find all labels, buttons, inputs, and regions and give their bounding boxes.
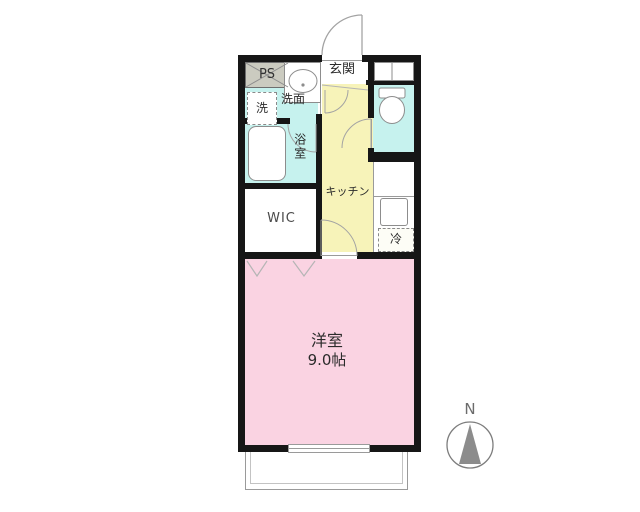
genkan-step-line bbox=[322, 85, 368, 90]
bathroom-label: 浴室 bbox=[292, 133, 306, 161]
pipe-space-label: PS bbox=[245, 62, 289, 88]
toilet-door-arc bbox=[342, 119, 371, 148]
main-room-size-label: 9.0帖 bbox=[267, 352, 387, 370]
kitchen-label: キッチン bbox=[320, 185, 375, 199]
main-room-door-arc bbox=[321, 220, 357, 256]
washstand-label: 洗面 bbox=[281, 93, 305, 107]
floorplan-canvas: PS 玄関 洗 洗面 浴室 キッチン WIC 冷 洋室 9.0帖 N bbox=[0, 0, 640, 512]
entrance-door-arc bbox=[322, 15, 362, 55]
main-room-name-label: 洋室 bbox=[267, 332, 387, 350]
washbasin-bowl-icon bbox=[289, 70, 317, 93]
washbasin-drain-icon bbox=[301, 83, 304, 86]
toilet-bowl-icon bbox=[380, 97, 405, 124]
closet-chevron-icon-1 bbox=[247, 261, 267, 276]
washer-space-label: 洗 bbox=[247, 92, 277, 125]
fridge-space-label: 冷 bbox=[378, 228, 414, 252]
entrance-label: 玄関 bbox=[329, 63, 355, 78]
washroom-door-arc bbox=[325, 90, 348, 113]
closet-chevron-icon-2 bbox=[293, 261, 315, 276]
wic-label: WIC bbox=[245, 211, 318, 227]
compass-north-arrow-icon bbox=[459, 424, 481, 464]
plan-symbols-layer bbox=[0, 0, 640, 512]
compass-north-label: N bbox=[460, 402, 480, 418]
